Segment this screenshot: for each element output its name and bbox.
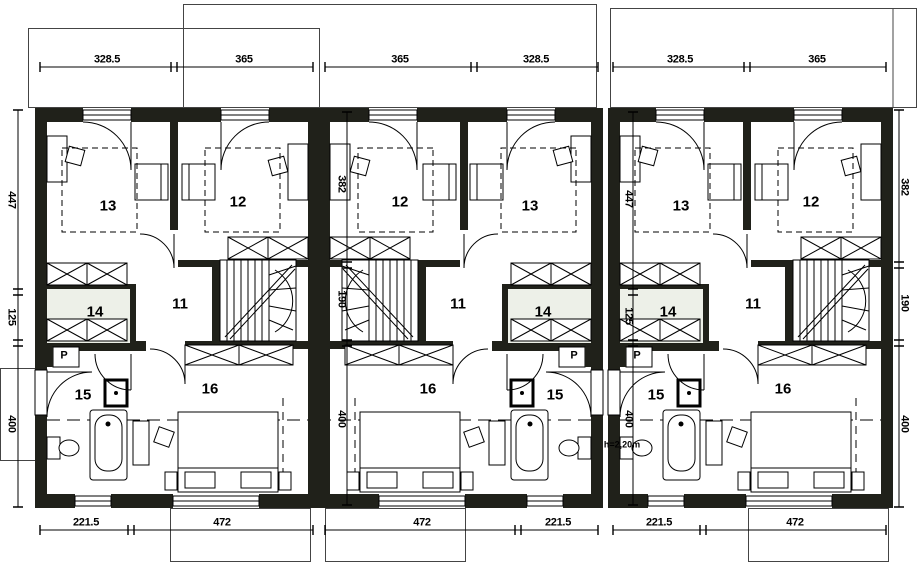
unit3-closet-p-label: P bbox=[633, 351, 640, 362]
dim-bottom-u1-b: 472 bbox=[213, 518, 230, 529]
dim-top-u3-a: 328.5 bbox=[667, 55, 693, 66]
dim-top-u2-a: 365 bbox=[391, 55, 408, 66]
unit3-room-16-label: 16 bbox=[775, 382, 792, 397]
dim-top-u2-b: 328.5 bbox=[523, 55, 549, 66]
dim-inner-u3-1: 447 bbox=[623, 190, 634, 207]
floor-plan: 13 12 14 11 15 16 P 12 13 14 11 15 16 P … bbox=[0, 0, 917, 564]
dim-bottom-u2-b: 221.5 bbox=[545, 518, 571, 529]
unit3-room-15-label: 15 bbox=[648, 388, 665, 403]
dim-right-1: 382 bbox=[899, 178, 910, 195]
floor-plan-drawing bbox=[0, 0, 917, 564]
unit3-room-12-label: 12 bbox=[803, 195, 820, 210]
unit1-room-13-label: 13 bbox=[100, 199, 117, 214]
unit2-room-15-label: 15 bbox=[547, 388, 564, 403]
dim-left-2: 125 bbox=[6, 308, 17, 325]
unit2-room-14-label: 14 bbox=[535, 305, 552, 320]
unit2-room-11-label: 11 bbox=[450, 297, 466, 312]
dim-bottom-u2-a: 472 bbox=[413, 518, 430, 529]
dim-top-u3-b: 365 bbox=[808, 55, 825, 66]
dim-left-3: 400 bbox=[6, 415, 17, 432]
unit1-room-14-label: 14 bbox=[87, 305, 104, 320]
unit2-closet-p-label: P bbox=[570, 351, 577, 362]
unit3-room-14-label: 14 bbox=[660, 305, 677, 320]
unit1-room-12-label: 12 bbox=[230, 195, 247, 210]
dim-inner-u2-3: 400 bbox=[336, 410, 347, 427]
unit2-room-16-label: 16 bbox=[420, 382, 437, 397]
dim-bottom-u3-b: 472 bbox=[786, 518, 803, 529]
dim-inner-u3-3: 400 bbox=[623, 410, 634, 427]
unit1-room-16-label: 16 bbox=[202, 382, 219, 397]
unit3-room-11-label: 11 bbox=[745, 297, 761, 312]
dim-bottom-u3-a: 221.5 bbox=[646, 518, 672, 529]
height-note: h=2,20m bbox=[604, 441, 640, 450]
dim-left-1: 447 bbox=[6, 191, 17, 208]
unit2-room-12-label: 12 bbox=[392, 195, 409, 210]
dim-top-u1-a: 328.5 bbox=[94, 55, 120, 66]
dim-inner-u3-2: 125 bbox=[623, 307, 634, 324]
unit1-room-11-label: 11 bbox=[172, 297, 188, 312]
unit3-room-13-label: 13 bbox=[673, 199, 690, 214]
unit1-closet-p-label: P bbox=[60, 351, 67, 362]
dim-bottom-u1-a: 221.5 bbox=[73, 518, 99, 529]
dim-right-3: 400 bbox=[899, 415, 910, 432]
dim-top-u1-b: 365 bbox=[235, 55, 252, 66]
unit2-room-13-label: 13 bbox=[522, 199, 539, 214]
unit1-room-15-label: 15 bbox=[75, 388, 92, 403]
dim-inner-u2-2: 190 bbox=[336, 290, 347, 307]
dim-right-2: 190 bbox=[899, 294, 910, 311]
dim-inner-u2-1: 382 bbox=[336, 175, 347, 192]
